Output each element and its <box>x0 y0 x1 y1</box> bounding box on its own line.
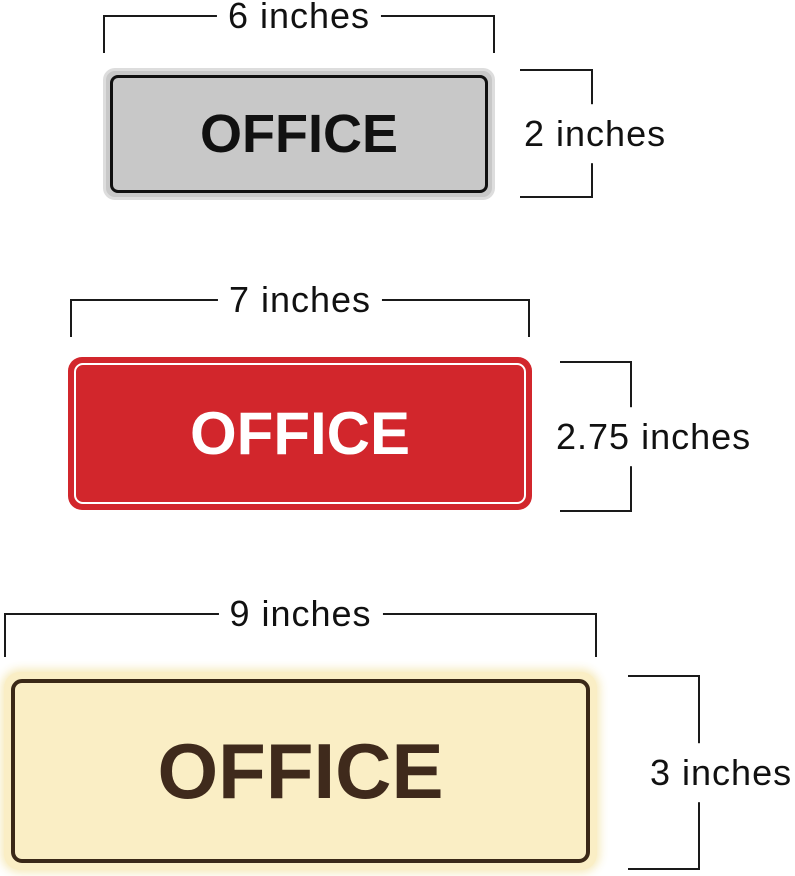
height-dimension-label: 2 inches <box>520 104 670 164</box>
height-dimension-label: 3 inches <box>646 743 795 803</box>
office-sign-silver: OFFICE <box>103 68 495 200</box>
height-dimension-bracket-2in: 2 inches <box>520 69 593 198</box>
sign-size-diagram: 6 inches OFFICE 2 inches 7 inches OFFICE… <box>0 0 795 876</box>
height-dimension-bracket-2-75in: 2.75 inches <box>560 361 632 512</box>
width-dimension-bracket-9in: 9 inches <box>4 613 597 657</box>
width-dimension-label: 6 inches <box>217 0 381 36</box>
office-sign-red: OFFICE <box>68 357 532 510</box>
sign-text: OFFICE <box>190 404 410 464</box>
width-dimension-label: 9 inches <box>218 594 382 634</box>
office-sign-cream: OFFICE <box>4 672 597 870</box>
height-dimension-label: 2.75 inches <box>552 407 755 467</box>
sign-text: OFFICE <box>200 107 398 161</box>
sign-text: OFFICE <box>158 732 444 810</box>
width-dimension-bracket-7in: 7 inches <box>70 299 530 337</box>
height-dimension-bracket-3in: 3 inches <box>628 675 700 870</box>
width-dimension-bracket-6in: 6 inches <box>103 15 495 53</box>
width-dimension-label: 7 inches <box>218 280 382 320</box>
